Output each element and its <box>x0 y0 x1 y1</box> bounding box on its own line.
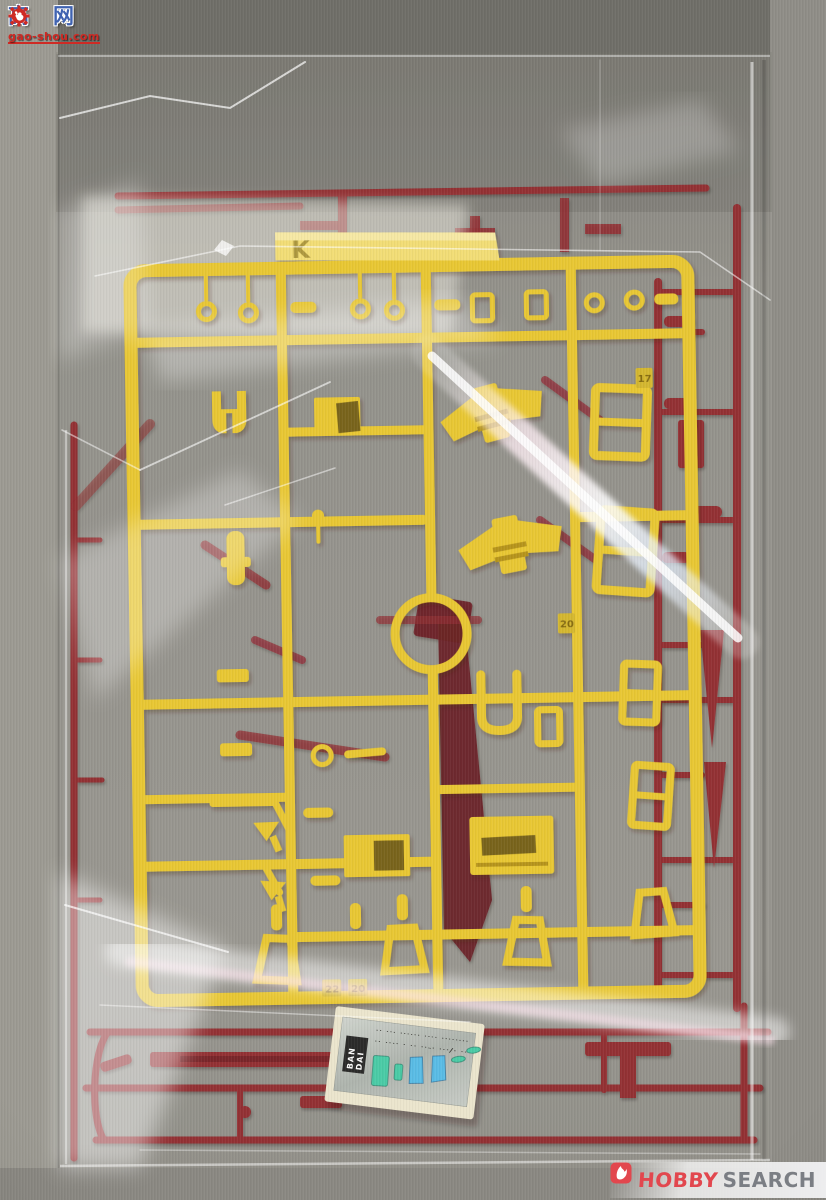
photo-scene: K <box>0 0 826 1200</box>
gaoshou-char-right: 网 <box>53 6 74 27</box>
photo-stage: K <box>0 0 826 1200</box>
hobbysearch-word1: HOBBY <box>637 1168 719 1192</box>
hobbysearch-word2: SEARCH <box>723 1168 816 1192</box>
gaoshou-url: gao-shou.com <box>8 31 100 44</box>
gear-fist-icon <box>30 5 52 27</box>
watermark-gaoshou: 高 网 gao-shou.com <box>8 5 100 44</box>
watermark-hobbysearch: HOBBY SEARCH <box>610 1162 826 1198</box>
plastic-bag <box>56 52 775 1168</box>
hobbysearch-flame-icon <box>611 1169 633 1191</box>
